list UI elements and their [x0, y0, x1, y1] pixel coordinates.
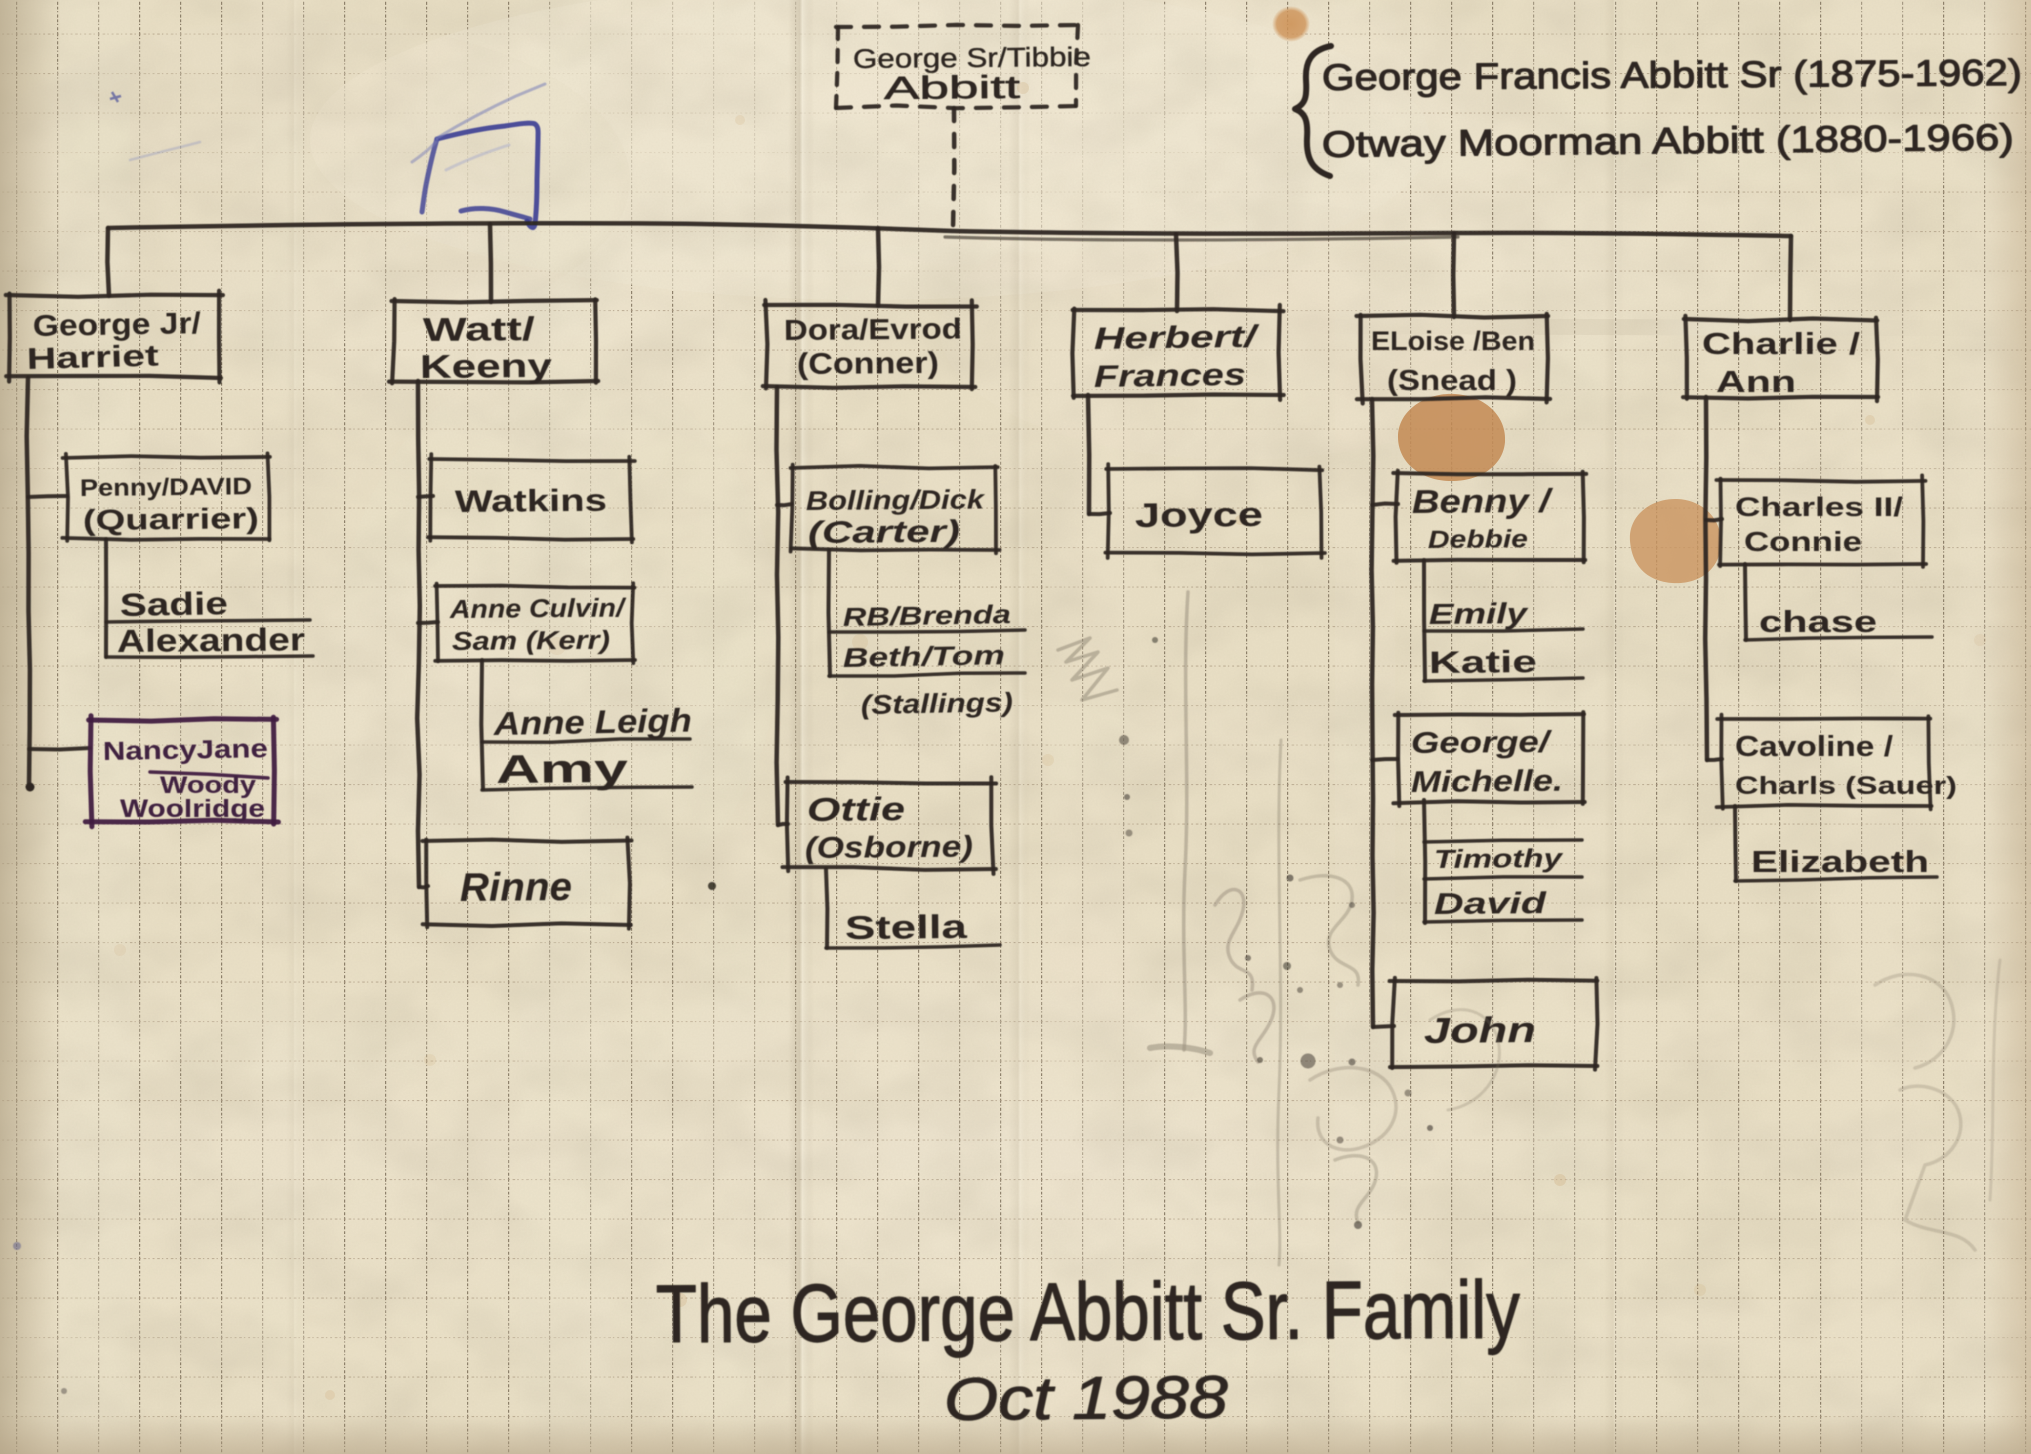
svg-text:Frances: Frances	[1094, 357, 1246, 394]
svg-text:Michelle.: Michelle.	[1411, 765, 1563, 799]
svg-text:Joyce: Joyce	[1135, 496, 1263, 535]
svg-text:The George Abbitt Sr. Family: The George Abbitt Sr. Family	[656, 1264, 1520, 1360]
svg-text:Charlie /: Charlie /	[1702, 326, 1860, 361]
svg-text:(Osborne): (Osborne)	[805, 831, 973, 865]
svg-text:Amy: Amy	[496, 747, 630, 792]
svg-text:Emily: Emily	[1429, 598, 1530, 631]
svg-text:Stella: Stella	[845, 908, 968, 946]
svg-text:Timothy: Timothy	[1434, 843, 1564, 874]
svg-text:Herbert/: Herbert/	[1094, 319, 1261, 356]
svg-text:Rinne: Rinne	[460, 865, 572, 910]
svg-text:Alexander: Alexander	[117, 621, 305, 659]
svg-text:Sadie: Sadie	[119, 585, 228, 623]
svg-text:ELoise /Ben: ELoise /Ben	[1371, 326, 1535, 356]
svg-text:(Snead ): (Snead )	[1387, 365, 1517, 397]
svg-text:Anne Culvin/: Anne Culvin/	[449, 592, 627, 624]
svg-text:Charls (Sauer): Charls (Sauer)	[1735, 772, 1957, 800]
svg-text:Anne Leigh: Anne Leigh	[492, 702, 692, 742]
svg-text:Woolridge: Woolridge	[120, 795, 265, 823]
svg-text:(Stallings): (Stallings)	[861, 687, 1014, 720]
svg-text:Benny /: Benny /	[1412, 482, 1555, 520]
svg-text:Oct 1988: Oct 1988	[944, 1364, 1229, 1433]
svg-text:RB/Brenda: RB/Brenda	[843, 599, 1011, 632]
svg-text:George Jr/: George Jr/	[33, 307, 202, 343]
svg-text:Keeny: Keeny	[420, 347, 553, 385]
svg-text:George Francis Abbitt Sr (1875: George Francis Abbitt Sr (1875-1962)	[1322, 52, 2022, 98]
svg-text:NancyJane: NancyJane	[103, 733, 268, 766]
svg-text:Ann: Ann	[1716, 364, 1796, 399]
svg-text:Watt/: Watt/	[423, 310, 535, 348]
svg-text:Abbitt: Abbitt	[884, 69, 1020, 106]
svg-text:David: David	[1434, 887, 1547, 921]
svg-text:(Carter): (Carter)	[808, 514, 960, 550]
svg-text:Charles II/: Charles II/	[1735, 492, 1904, 522]
svg-text:Katie: Katie	[1429, 644, 1537, 680]
svg-text:Connie: Connie	[1744, 526, 1862, 557]
svg-text:Penny/DAVID: Penny/DAVID	[80, 473, 252, 502]
svg-text:Sam (Kerr): Sam (Kerr)	[452, 625, 610, 656]
svg-text:Cavoline /: Cavoline /	[1735, 731, 1893, 763]
svg-text:chase: chase	[1759, 604, 1877, 639]
svg-text:Ottie: Ottie	[807, 790, 905, 828]
svg-text:George/: George/	[1411, 726, 1553, 760]
svg-text:Harriet: Harriet	[26, 340, 159, 376]
svg-text:(Conner): (Conner)	[797, 347, 939, 381]
svg-text:Beth/Tom: Beth/Tom	[843, 640, 1005, 673]
svg-text:(Quarrier): (Quarrier)	[83, 503, 259, 537]
svg-text:Otway Moorman Abbitt (1880-196: Otway Moorman Abbitt (1880-1966)	[1322, 117, 2014, 165]
svg-text:Bolling/Dick: Bolling/Dick	[806, 484, 987, 516]
svg-text:Watkins: Watkins	[455, 483, 607, 519]
svg-text:Dora/Evrod: Dora/Evrod	[784, 313, 962, 347]
svg-text:Debbie: Debbie	[1428, 525, 1528, 554]
svg-text:Elizabeth: Elizabeth	[1751, 844, 1929, 879]
